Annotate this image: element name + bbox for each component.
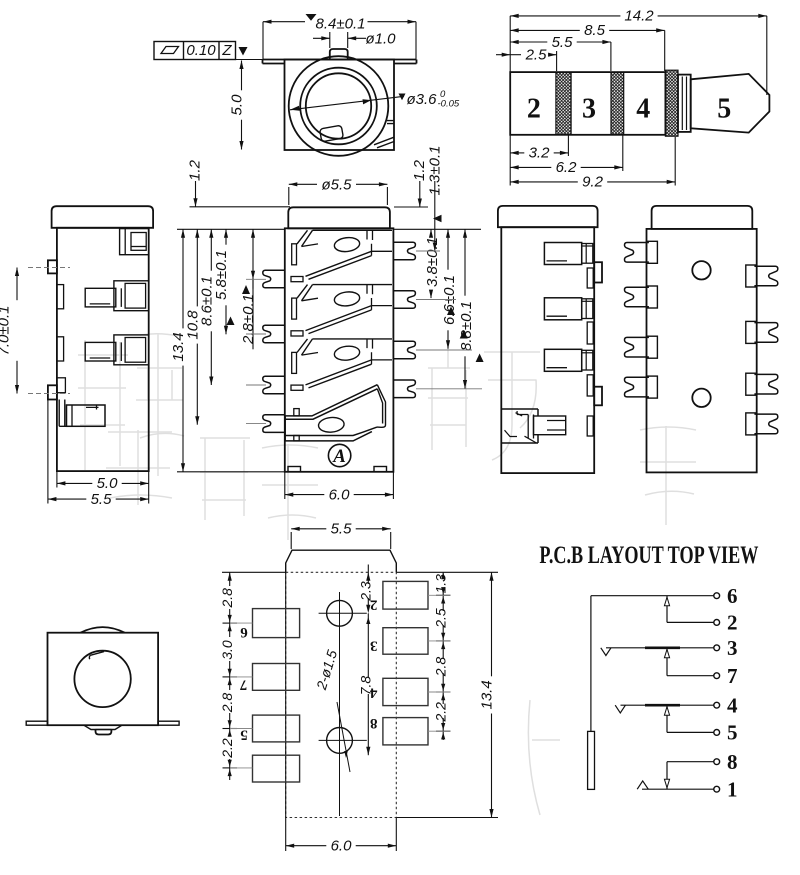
svg-text:2: 2 (727, 611, 738, 635)
svg-text:6: 6 (727, 584, 738, 608)
svg-text:8.8±0.1: 8.8±0.1 (458, 301, 475, 351)
svg-text:3: 3 (727, 636, 738, 660)
svg-text:5.0: 5.0 (229, 94, 246, 116)
svg-text:ø5.5: ø5.5 (321, 176, 352, 193)
svg-text:4: 4 (369, 685, 377, 701)
svg-text:2.8±0.1: 2.8±0.1 (240, 294, 257, 345)
svg-text:ø3.6: ø3.6 (407, 91, 438, 108)
svg-text:9.2: 9.2 (582, 174, 604, 191)
svg-text:2.8: 2.8 (433, 657, 449, 678)
svg-text:6: 6 (240, 624, 248, 640)
svg-text:2.5: 2.5 (433, 608, 449, 629)
svg-text:8: 8 (370, 715, 378, 731)
svg-text:14.2: 14.2 (624, 8, 654, 25)
svg-text:2.5: 2.5 (525, 47, 548, 64)
svg-text:1.2: 1.2 (411, 159, 428, 181)
svg-text:2.2: 2.2 (219, 738, 235, 759)
svg-text:6.0: 6.0 (329, 486, 351, 503)
svg-text:3.0: 3.0 (219, 640, 235, 660)
svg-text:P.C.B LAYOUT TOP VIEW: P.C.B LAYOUT TOP VIEW (539, 542, 758, 569)
svg-text:2.2: 2.2 (433, 702, 449, 723)
svg-text:1.3: 1.3 (433, 574, 449, 594)
svg-text:5.5: 5.5 (91, 491, 113, 508)
svg-text:5: 5 (240, 727, 248, 743)
svg-text:0.10: 0.10 (186, 42, 216, 59)
svg-text:A: A (332, 446, 346, 467)
svg-text:1: 1 (727, 778, 738, 802)
svg-text:7.0±0.1: 7.0±0.1 (0, 306, 13, 356)
svg-text:5: 5 (717, 93, 731, 124)
svg-text:2.8: 2.8 (219, 588, 235, 609)
svg-text:2.8: 2.8 (219, 693, 235, 714)
svg-text:3.2: 3.2 (529, 145, 551, 162)
svg-text:5: 5 (727, 721, 738, 745)
svg-text:6.2: 6.2 (556, 159, 578, 176)
svg-text:13.4: 13.4 (479, 680, 496, 709)
svg-text:2: 2 (370, 597, 378, 613)
svg-text:7: 7 (239, 677, 247, 693)
svg-text:8.4±0.1: 8.4±0.1 (316, 15, 366, 32)
svg-text:ø1.0: ø1.0 (365, 31, 396, 48)
svg-text:6.0: 6.0 (331, 838, 353, 855)
svg-text:3: 3 (582, 93, 596, 124)
svg-text:5.5: 5.5 (552, 34, 574, 51)
svg-text:3.8±0.1: 3.8±0.1 (424, 237, 441, 287)
svg-text:6.6±0.1: 6.6±0.1 (441, 275, 458, 325)
svg-text:5.8±0.1: 5.8±0.1 (213, 250, 230, 300)
svg-text:-0.05: -0.05 (438, 99, 460, 110)
svg-text:4: 4 (636, 93, 650, 124)
svg-text:4: 4 (727, 694, 738, 718)
svg-text:7: 7 (727, 664, 738, 688)
svg-text:8: 8 (727, 750, 738, 774)
svg-text:Z: Z (221, 42, 232, 59)
svg-text:5.5: 5.5 (331, 521, 353, 538)
svg-text:3: 3 (370, 638, 378, 654)
svg-text:5.0: 5.0 (97, 475, 119, 492)
svg-text:2: 2 (527, 93, 541, 124)
svg-text:8.5: 8.5 (584, 22, 606, 39)
svg-text:1.2: 1.2 (186, 159, 203, 181)
